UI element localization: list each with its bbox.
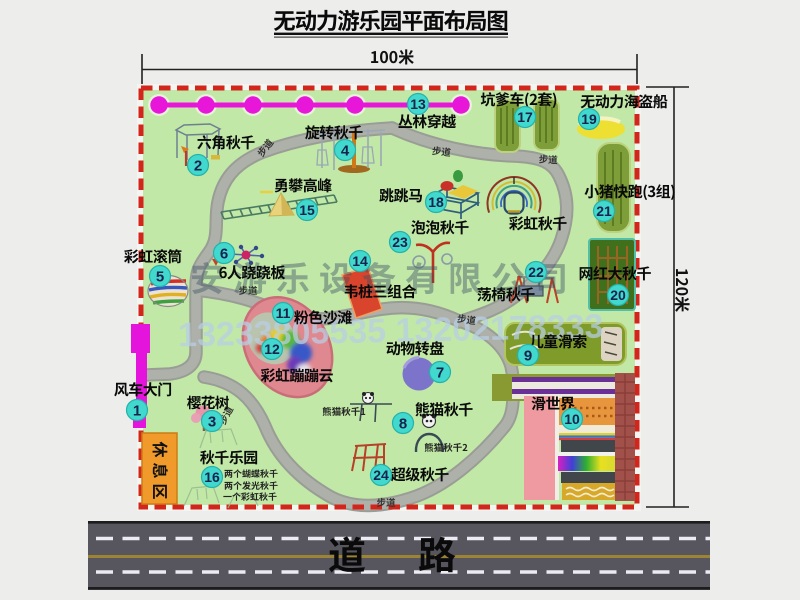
svg-text:23: 23	[392, 234, 408, 250]
svg-text:5: 5	[156, 268, 164, 285]
svg-text:19: 19	[581, 111, 597, 127]
svg-text:20: 20	[610, 287, 626, 303]
svg-text:13: 13	[410, 96, 426, 112]
svg-text:21: 21	[596, 203, 612, 219]
svg-text:16: 16	[204, 469, 220, 485]
svg-text:14: 14	[352, 253, 368, 269]
svg-text:3: 3	[208, 413, 216, 430]
svg-text:8: 8	[399, 415, 407, 432]
svg-text:22: 22	[528, 264, 544, 280]
svg-text:12: 12	[264, 341, 280, 357]
svg-text:9: 9	[524, 347, 532, 364]
svg-text:10: 10	[564, 411, 580, 427]
svg-text:2: 2	[194, 157, 202, 174]
svg-text:15: 15	[299, 202, 315, 218]
svg-text:18: 18	[428, 194, 444, 210]
svg-text:6: 6	[220, 245, 228, 262]
svg-text:24: 24	[373, 467, 389, 483]
svg-text:4: 4	[341, 142, 350, 159]
svg-text:7: 7	[436, 364, 444, 381]
svg-text:11: 11	[276, 305, 291, 321]
svg-text:17: 17	[517, 109, 533, 125]
svg-text:1: 1	[133, 402, 141, 419]
